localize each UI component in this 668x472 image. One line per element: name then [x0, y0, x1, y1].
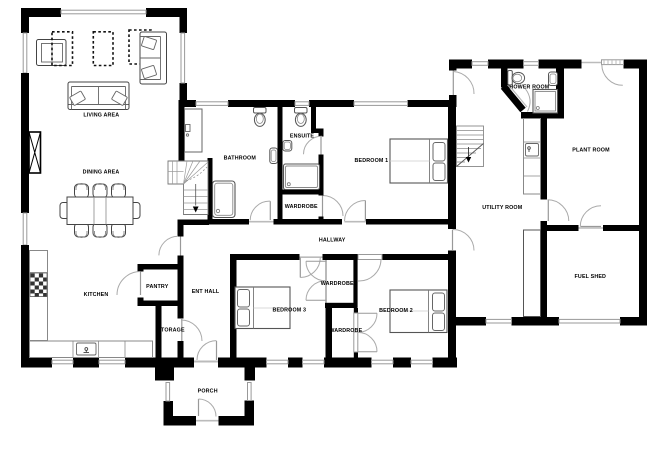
svg-text:BEDROOM 2: BEDROOM 2 [379, 308, 413, 314]
svg-text:ENT HALL: ENT HALL [192, 289, 220, 295]
svg-text:HALLWAY: HALLWAY [319, 238, 346, 244]
svg-text:WARDROBE: WARDROBE [285, 204, 318, 210]
svg-text:BEDROOM 1: BEDROOM 1 [355, 158, 389, 164]
svg-text:STORAGE: STORAGE [157, 328, 185, 334]
svg-text:KITCHEN: KITCHEN [84, 292, 109, 298]
svg-text:WARDROBE: WARDROBE [321, 281, 354, 287]
svg-text:LIVING AREA: LIVING AREA [83, 113, 119, 119]
svg-text:WARDROBE: WARDROBE [329, 328, 362, 334]
svg-text:SHOWER ROOM: SHOWER ROOM [506, 85, 550, 91]
svg-text:ENSUITE: ENSUITE [290, 133, 314, 139]
svg-text:BEDROOM 3: BEDROOM 3 [272, 308, 306, 314]
svg-text:PORCH: PORCH [198, 389, 218, 395]
svg-text:BATHROOM: BATHROOM [224, 156, 257, 162]
svg-text:PLANT ROOM: PLANT ROOM [572, 148, 610, 154]
svg-text:UTILITY ROOM: UTILITY ROOM [482, 205, 522, 211]
svg-text:DINING AREA: DINING AREA [83, 169, 120, 175]
svg-text:PANTRY: PANTRY [146, 284, 169, 290]
svg-text:FUEL SHED: FUEL SHED [575, 274, 607, 280]
